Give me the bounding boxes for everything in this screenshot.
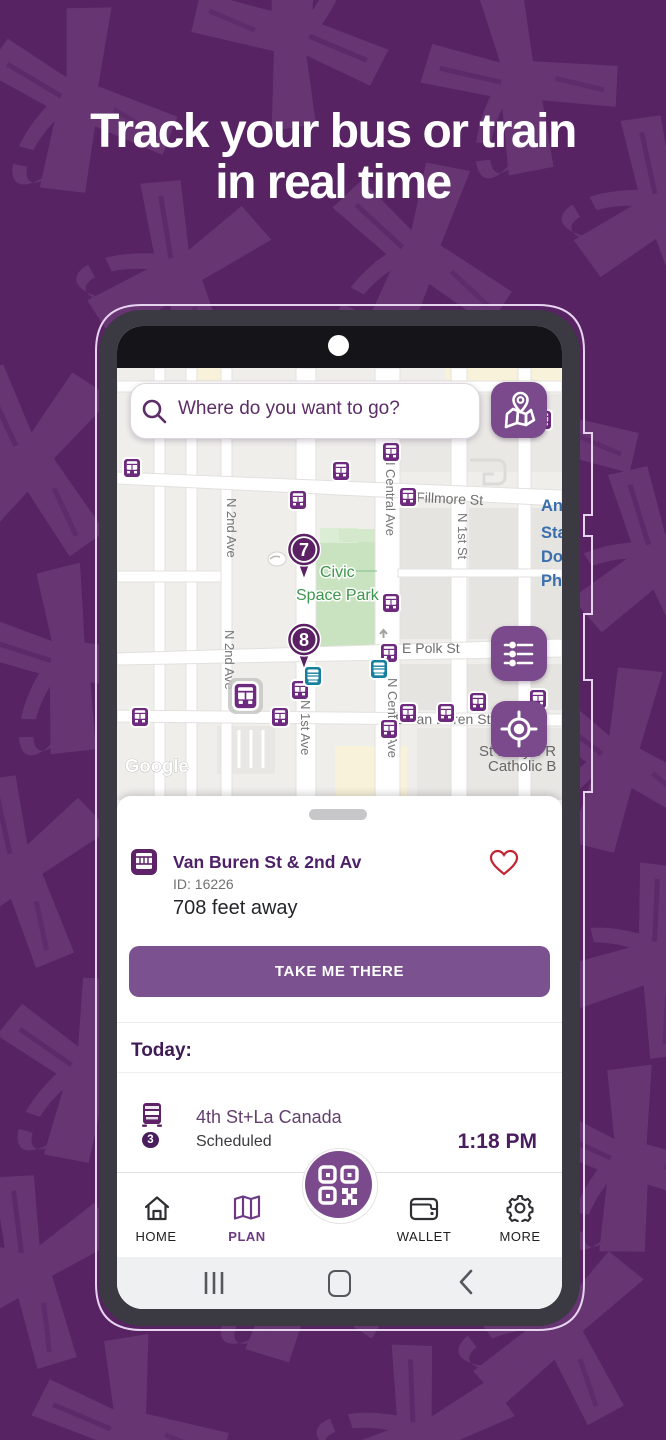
svg-text:Sta: Sta bbox=[541, 524, 562, 542]
svg-text:7: 7 bbox=[299, 540, 309, 560]
svg-text:Dow: Dow bbox=[541, 548, 562, 566]
svg-text:Civic: Civic bbox=[320, 564, 355, 581]
svg-text:Catholic B: Catholic B bbox=[488, 758, 556, 775]
svg-text:N 2nd Ave: N 2nd Ave bbox=[224, 498, 239, 558]
svg-text:Pho: Pho bbox=[541, 572, 562, 590]
svg-text:An: An bbox=[541, 497, 562, 515]
svg-text:N Central Ave: N Central Ave bbox=[383, 456, 398, 536]
svg-text:N 1st St: N 1st St bbox=[455, 513, 470, 560]
svg-text:E Polk St: E Polk St bbox=[402, 640, 460, 656]
svg-text:8: 8 bbox=[299, 630, 309, 650]
svg-text:N Central Ave: N Central Ave bbox=[385, 678, 400, 758]
svg-text:N 1st Ave: N 1st Ave bbox=[298, 700, 313, 755]
svg-text:Fillmore St: Fillmore St bbox=[416, 489, 484, 508]
svg-text:Space Park: Space Park bbox=[296, 587, 380, 604]
svg-text:Google: Google bbox=[125, 755, 189, 776]
